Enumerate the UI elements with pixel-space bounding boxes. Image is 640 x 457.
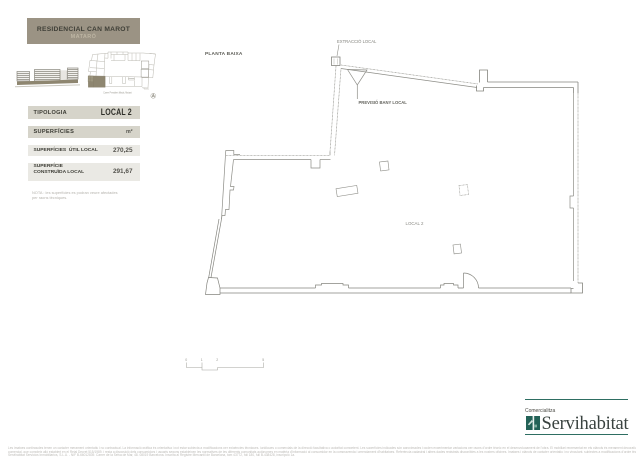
svg-text:0: 0 bbox=[185, 358, 187, 362]
svg-text:5: 5 bbox=[262, 358, 264, 362]
svg-text:1: 1 bbox=[201, 358, 203, 362]
svg-text:LOCAL 2: LOCAL 2 bbox=[406, 221, 424, 226]
svg-text:EXTRACCIÓ LOCAL: EXTRACCIÓ LOCAL bbox=[337, 39, 377, 44]
svg-text:PLANTA BAIXA: PLANTA BAIXA bbox=[205, 51, 243, 57]
svg-text:2: 2 bbox=[216, 358, 218, 362]
svg-text:PREVISIÓ BANY LOCAL: PREVISIÓ BANY LOCAL bbox=[359, 100, 408, 105]
